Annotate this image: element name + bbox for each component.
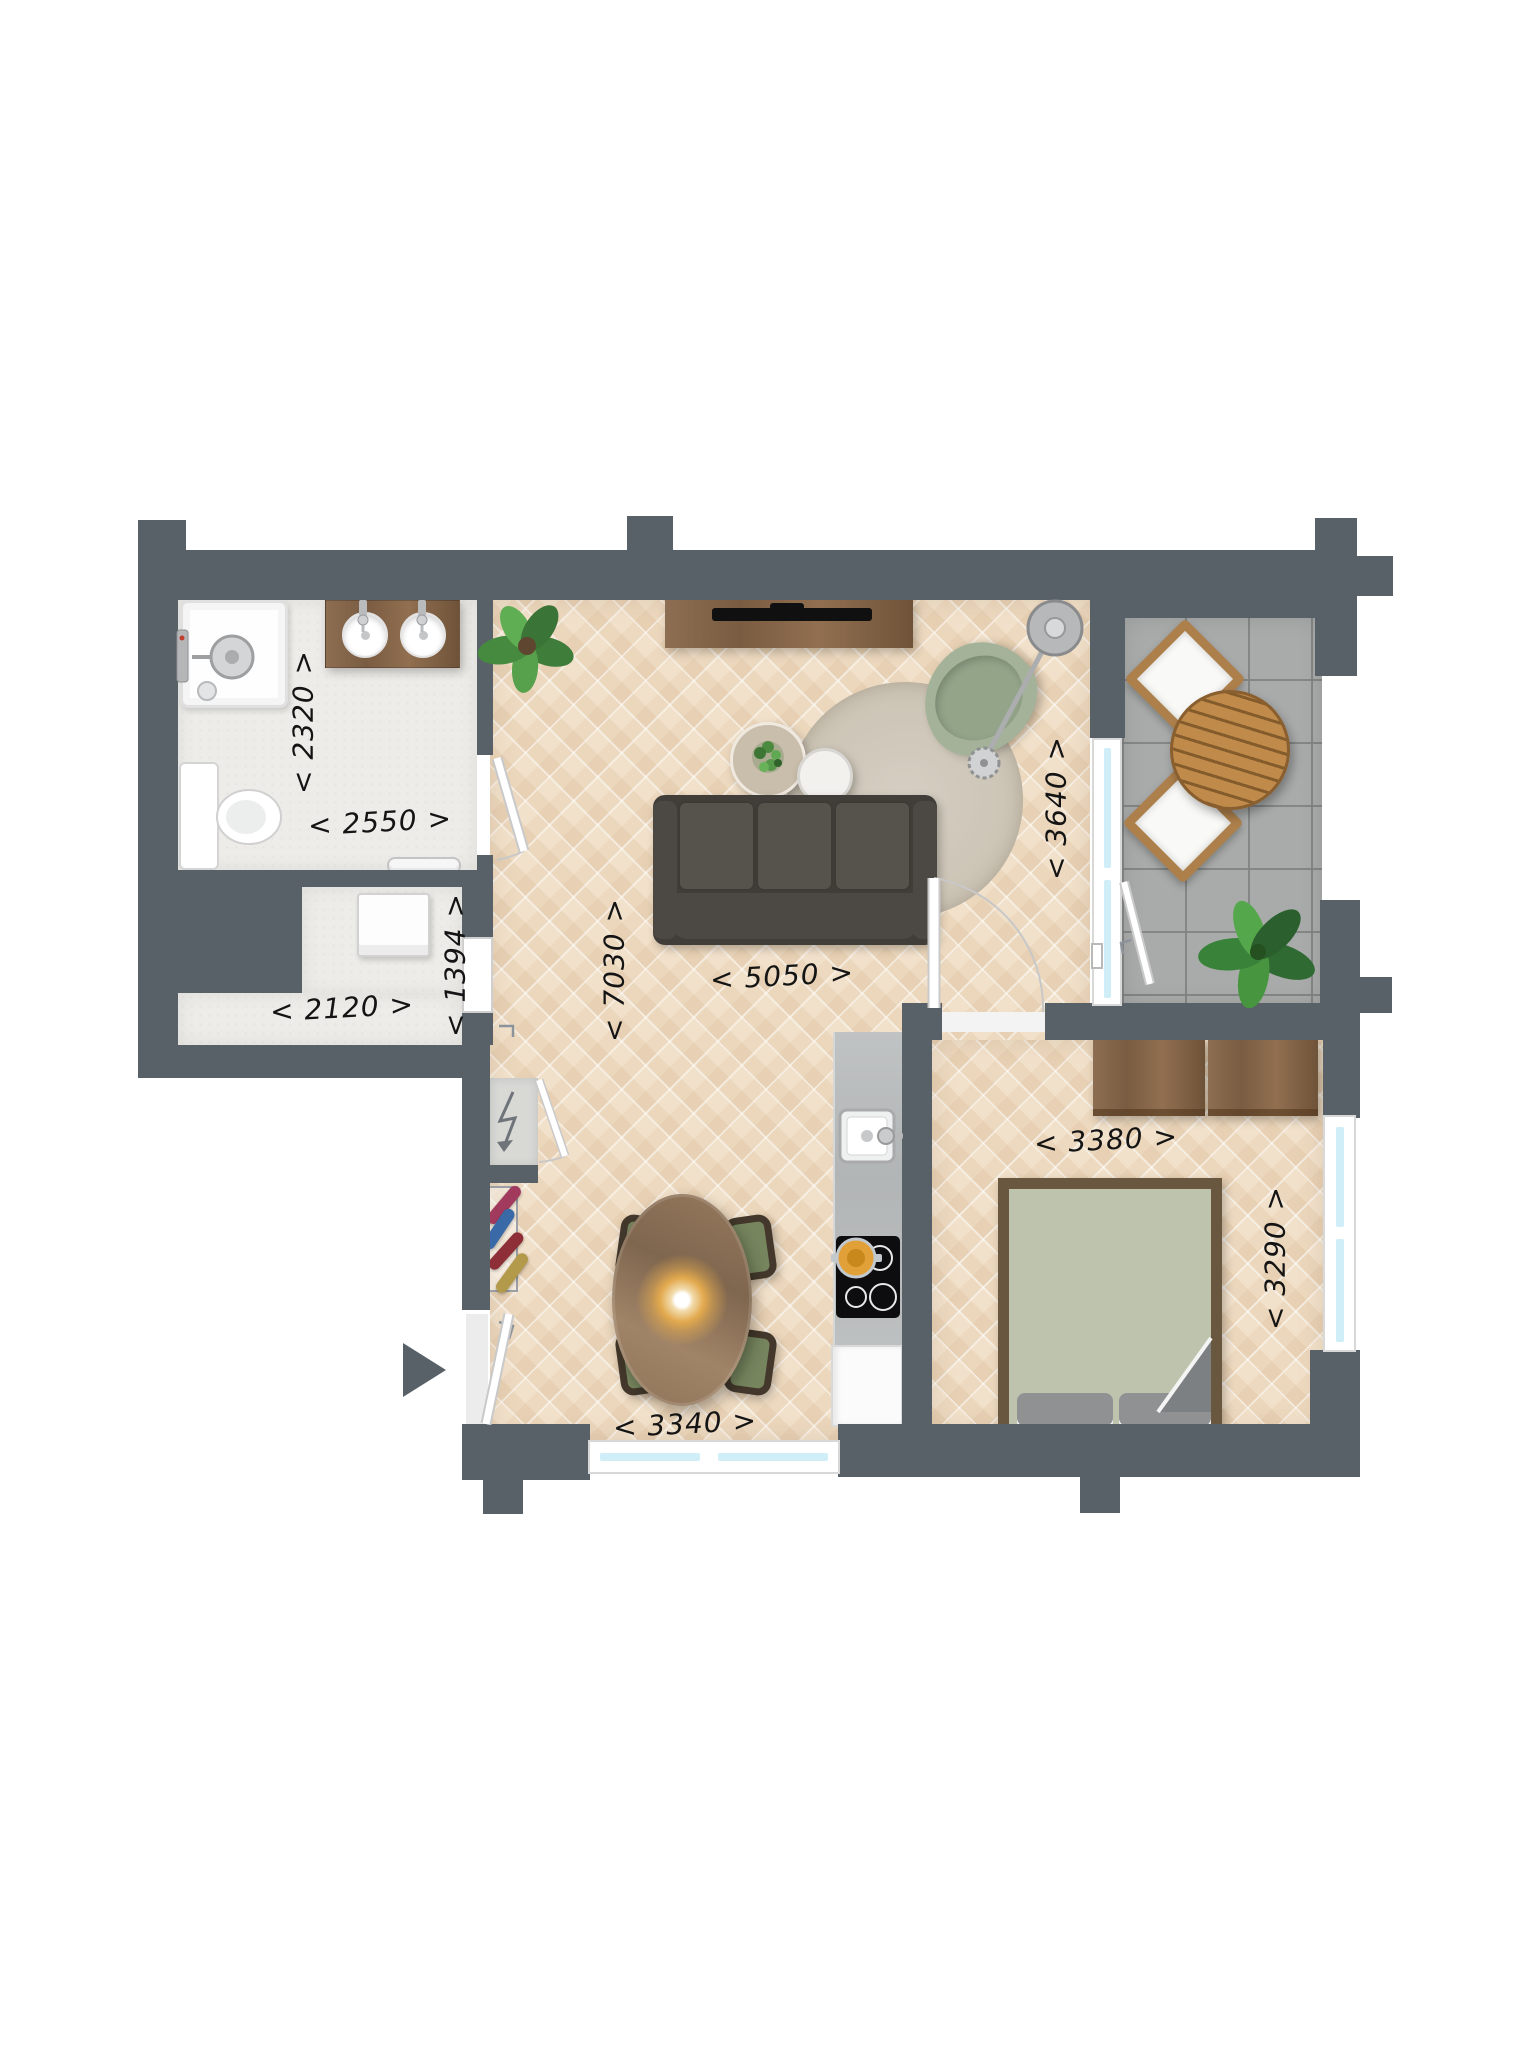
wall-left bbox=[138, 595, 178, 1078]
window-glass bbox=[1336, 1127, 1344, 1227]
wall-bottom bbox=[838, 1424, 1360, 1477]
wall-bedroom-right-upper bbox=[1323, 1040, 1360, 1118]
washbasin bbox=[342, 612, 388, 658]
wall-entry bbox=[462, 1078, 490, 1310]
window-glass bbox=[1104, 748, 1111, 868]
washing-machine bbox=[357, 893, 430, 957]
wall-bathroom-right-upper bbox=[477, 600, 493, 755]
window-dining bbox=[588, 1440, 840, 1474]
dim-bathroom-height: < 2320 > bbox=[287, 650, 320, 794]
wall-hall-block bbox=[138, 887, 302, 993]
washbasin bbox=[400, 612, 446, 658]
pendant-lamp-icon bbox=[636, 1254, 728, 1346]
kitchen-counter bbox=[833, 1032, 902, 1345]
wall-pillar-top-right-arm bbox=[1357, 556, 1393, 596]
window-glass bbox=[718, 1453, 828, 1461]
coffee-table-beige bbox=[730, 722, 806, 798]
wall-bedroom-right-lower bbox=[1310, 1350, 1360, 1426]
bed-pillow bbox=[1017, 1393, 1113, 1426]
bedroom-sideboard bbox=[1208, 1040, 1318, 1116]
sofa bbox=[653, 795, 937, 945]
wall-protrusion-bottom-left bbox=[483, 1480, 523, 1514]
wall-balcony-stub bbox=[1090, 598, 1125, 738]
wall-hall-bottom bbox=[138, 1045, 490, 1078]
shower-tray bbox=[180, 600, 288, 708]
wall-right-mid bbox=[1320, 900, 1360, 1040]
double-bed bbox=[998, 1178, 1222, 1428]
bed-pillow bbox=[1119, 1393, 1211, 1426]
balcony-door-handle bbox=[1091, 943, 1103, 969]
balcony-glass-door bbox=[1092, 738, 1122, 1006]
sofa-cushion bbox=[678, 801, 755, 891]
entrance-arrow-icon bbox=[403, 1343, 446, 1397]
floor-plan: < 2550 > < 2320 > < 2120 > < 1394 > < 70… bbox=[0, 0, 1536, 2048]
dim-bedroom-height: < 3290 > bbox=[1259, 1186, 1292, 1330]
wall-kitchen bbox=[902, 1003, 932, 1428]
wall-right-mid-arm bbox=[1357, 977, 1392, 1013]
bedroom-sideboard bbox=[1093, 1040, 1205, 1116]
sofa-cushion bbox=[834, 801, 911, 891]
coat-rack bbox=[488, 1186, 518, 1292]
window-glass bbox=[600, 1453, 700, 1461]
dim-living-height: < 7030 > bbox=[598, 898, 631, 1042]
window-glass bbox=[1104, 880, 1111, 998]
window-bedroom bbox=[1323, 1115, 1356, 1352]
wall-protrusion-bottom bbox=[1080, 1477, 1120, 1513]
wall-bathroom-bottom bbox=[178, 870, 478, 887]
wall-bedroom-top bbox=[1045, 1003, 1360, 1040]
dining-table bbox=[612, 1194, 752, 1406]
wall-top bbox=[138, 550, 1318, 600]
wall-pillar-top-right bbox=[1315, 518, 1357, 676]
wall-bedroom-top-left bbox=[932, 1003, 942, 1040]
bedroom-door-threshold bbox=[942, 1012, 1045, 1032]
wall-corner-bottom-left bbox=[462, 1424, 590, 1480]
dim-living-right-height: < 3640 > bbox=[1040, 736, 1073, 880]
tv-sideboard bbox=[665, 600, 913, 648]
wall-niche-divider bbox=[462, 1165, 538, 1183]
meter-cupboard-floor bbox=[490, 1078, 538, 1166]
entrance-threshold bbox=[466, 1314, 488, 1424]
sofa-cushion bbox=[756, 801, 833, 891]
washbasin-vanity bbox=[325, 600, 460, 668]
dim-hall-height: < 1394 > bbox=[439, 893, 472, 1037]
sofa-backrest bbox=[673, 893, 917, 939]
refrigerator bbox=[831, 1345, 903, 1427]
window-glass bbox=[1336, 1239, 1344, 1342]
tv-soundbar-icon bbox=[770, 603, 804, 610]
wall-pillar-top-mid bbox=[627, 516, 673, 556]
